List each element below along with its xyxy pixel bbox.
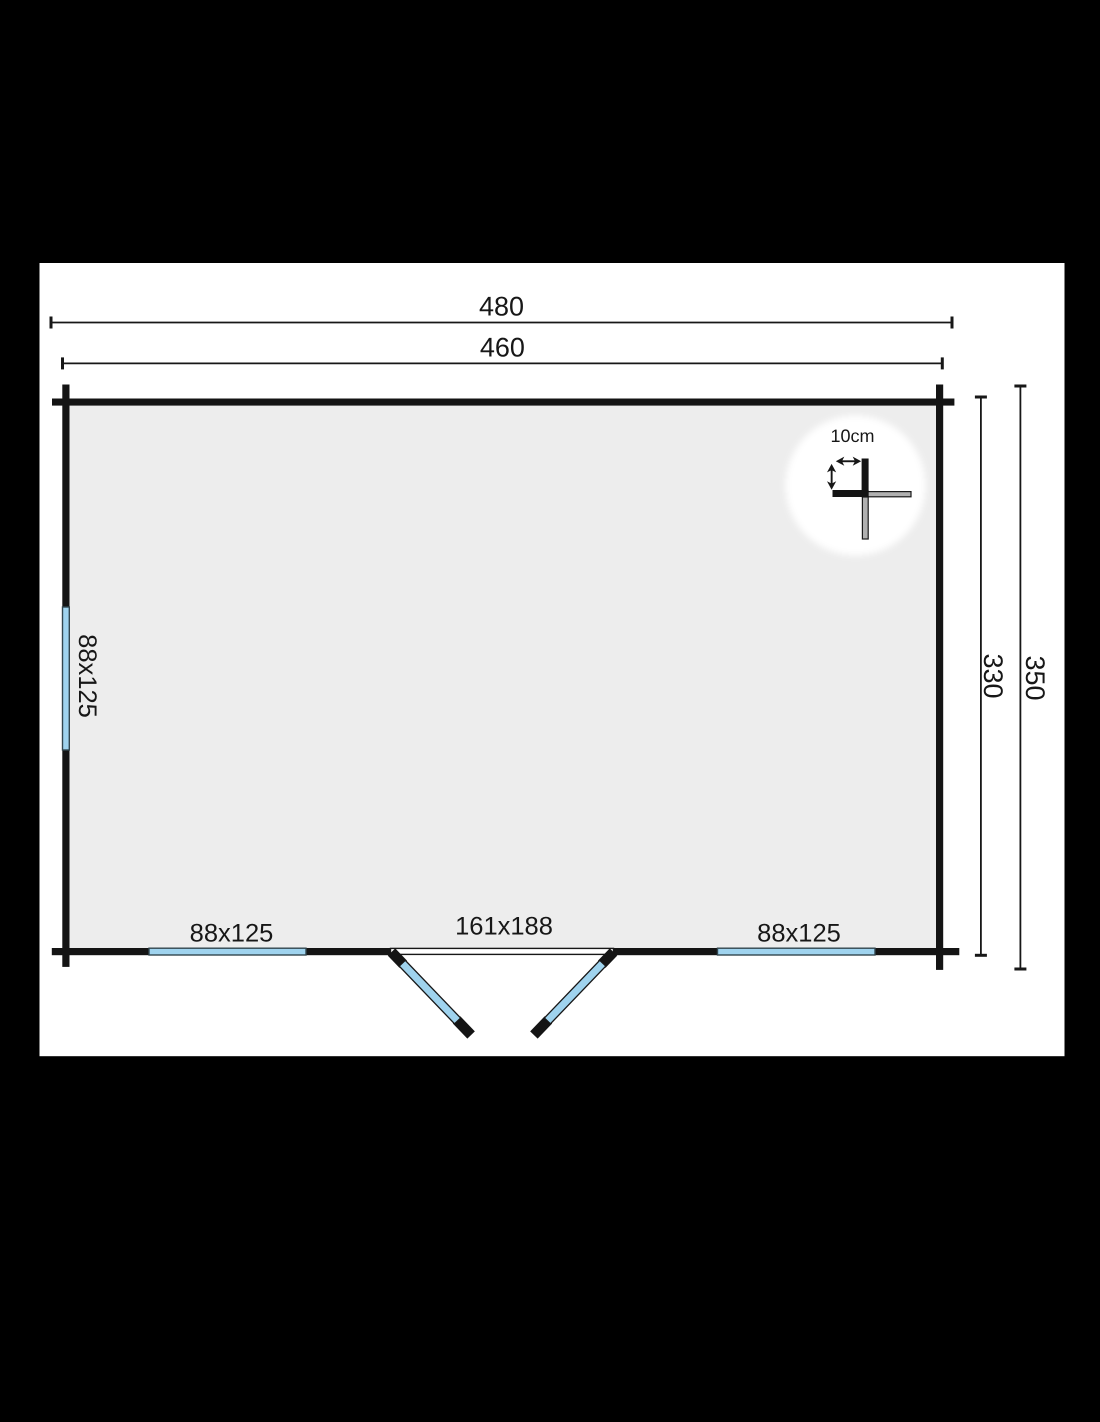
svg-text:88x125: 88x125 [190, 920, 274, 948]
svg-text:10cm: 10cm [830, 426, 874, 446]
svg-text:480: 480 [479, 292, 524, 322]
svg-text:88x125: 88x125 [73, 634, 101, 718]
svg-text:88x125: 88x125 [757, 920, 841, 948]
svg-text:330: 330 [978, 653, 1008, 698]
svg-text:350: 350 [1020, 655, 1050, 700]
svg-text:161x188: 161x188 [455, 913, 553, 941]
svg-text:460: 460 [480, 332, 525, 362]
